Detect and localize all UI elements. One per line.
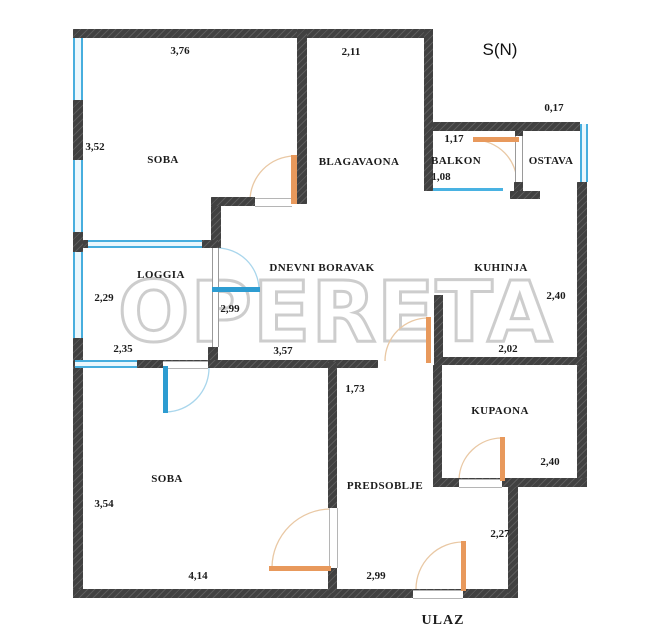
wall-kupaona-left — [433, 365, 442, 478]
window-loggia-left — [73, 252, 83, 338]
glazing-loggia-lower — [212, 292, 219, 347]
door-leaf-predsoblje-entry — [426, 317, 431, 363]
door-arc-ulaz — [416, 542, 464, 589]
wall-kupaona-bottom — [433, 478, 587, 487]
window-ostava-right — [580, 124, 588, 182]
compass-label: S(N) — [483, 40, 518, 60]
wall-kuhinja-stub — [434, 295, 443, 365]
room-label-dnevni-boravak: DNEVNI BORAVAK — [269, 262, 374, 274]
window-soba-top-1 — [73, 38, 83, 100]
door-arc-kupaona — [459, 438, 502, 479]
door-arc-soba-bottom-loggia — [166, 368, 209, 412]
window-soba-bottom — [75, 360, 137, 368]
wall-left-outer — [73, 368, 83, 589]
frame-balkon-ostava-door — [515, 136, 523, 182]
dim-kupaona-height: 2,40 — [540, 456, 559, 468]
window-balkon-bottom — [433, 188, 503, 191]
dim-loggia-glazing: 2,99 — [220, 303, 239, 315]
dim-loggia-height: 2,29 — [94, 292, 113, 304]
door-arc-loggia — [217, 248, 259, 289]
wall-step-right — [508, 487, 518, 598]
door-arc-predsoblje-entry — [385, 318, 428, 361]
door-leaf-soba-bottom — [269, 566, 331, 571]
wall-left-outer — [73, 232, 83, 252]
dim-dnevni-width: 3,57 — [273, 345, 292, 357]
wall-top-outer — [73, 29, 433, 38]
door-leaf-ulaz — [461, 541, 466, 591]
wall-balkon-top — [433, 122, 580, 131]
floor-plan: OPERETA — [0, 0, 665, 640]
dim-soba-bottom-width: 4,14 — [188, 570, 207, 582]
door-arc-soba-bottom — [272, 509, 331, 567]
room-label-blagavaona: BLAGAVAONA — [319, 156, 400, 168]
door-leaf-soba-top — [291, 155, 297, 204]
glazing-loggia-upper — [212, 248, 219, 288]
dim-step-height: 2,27 — [490, 528, 509, 540]
wall-predsoblje-left — [328, 362, 337, 508]
door-leaf-kupaona — [500, 437, 505, 481]
wall-soba-blagavaona — [297, 29, 307, 204]
dim-hall-top-width: 1,73 — [345, 383, 364, 395]
room-label-predsoblje: PREDSOBLJE — [347, 480, 423, 492]
wall-right-outer — [577, 182, 587, 487]
door-leaf-balkon — [473, 137, 519, 142]
opening-soba-bottom — [329, 508, 338, 568]
wall-kupaona-top — [434, 357, 587, 365]
room-label-soba-top: SOBA — [147, 154, 179, 166]
wall-soba-top-bottom — [211, 197, 255, 206]
opening-kupaona — [459, 479, 502, 488]
window-soba-top-2 — [73, 160, 83, 232]
dim-balkon-window-width: 1,08 — [431, 171, 450, 183]
dim-kuhinja-width: 2,02 — [498, 343, 517, 355]
room-label-ostava: OSTAVA — [529, 155, 574, 167]
wall-left-outer — [73, 100, 83, 160]
entrance-label: ULAZ — [422, 613, 465, 629]
room-label-loggia: LOGGIA — [137, 269, 185, 281]
wall-predsoblje-left-lower — [328, 568, 337, 593]
dim-blagavaona-width: 2,11 — [342, 46, 361, 58]
room-label-kupaona: KUPAONA — [471, 405, 529, 417]
dim-soba-bottom-height: 3,54 — [94, 498, 113, 510]
dim-ostava-offset: 0,17 — [544, 102, 563, 114]
dim-soba-top-width: 3,76 — [170, 45, 189, 57]
door-leaf-loggia — [212, 287, 260, 292]
room-label-soba-bottom: SOBA — [151, 473, 183, 485]
opening-ulaz — [413, 590, 463, 599]
door-arc-soba-top — [250, 156, 294, 201]
dim-loggia-width: 2,35 — [113, 343, 132, 355]
dim-balkon-door-width: 1,17 — [444, 133, 463, 145]
door-leaf-soba-bottom-loggia — [163, 366, 168, 413]
dim-soba-top-height: 3,52 — [85, 141, 104, 153]
dim-predsoblje-width: 2,99 — [366, 570, 385, 582]
door-arc-balkon — [475, 140, 517, 183]
room-label-kuhinja: KUHINJA — [474, 262, 528, 274]
window-loggia-top — [88, 240, 202, 248]
dim-kuhinja-height: 2,40 — [546, 290, 565, 302]
opening-soba-top — [255, 198, 292, 207]
wall-ostava-bottom — [510, 191, 540, 199]
room-label-balkon: BALKON — [431, 155, 481, 167]
opening-soba-bottom-loggia — [163, 361, 208, 369]
